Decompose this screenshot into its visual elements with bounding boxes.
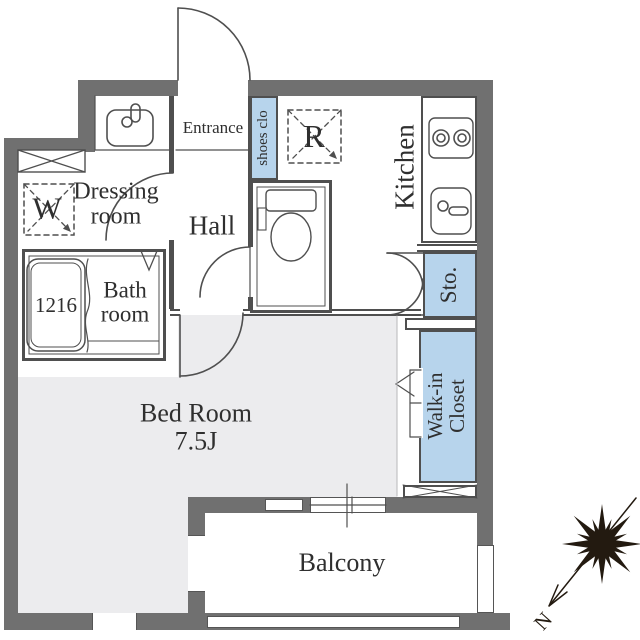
label-refrigerator: R: [303, 120, 324, 154]
label-entrance: Entrance: [183, 119, 243, 137]
kitchen-sink: [431, 188, 471, 234]
kitchen-faucet-handle: [449, 207, 468, 215]
compass-north-label: N: [529, 607, 557, 634]
toilet-bowl: [271, 213, 311, 261]
label-dressing-room: Dressing room: [46, 180, 186, 231]
kitchen-faucet: [438, 201, 448, 211]
label-shoes-closet: shoes clo: [256, 110, 272, 165]
label-hall: Hall: [189, 212, 236, 241]
stove-burner-left-outer: [433, 130, 449, 146]
label-walk-in-closet: Walk-in Closet: [424, 349, 469, 464]
label-storage: Sto.: [437, 267, 461, 303]
bedroom-door-arc: [180, 313, 243, 376]
label-bedroom-name: Bed Room: [140, 399, 252, 427]
toilet-door-arc: [200, 247, 250, 297]
label-kitchen: Kitchen: [391, 124, 420, 209]
stove-burner-right-outer: [454, 130, 470, 146]
storage-door-arc-bottom: [387, 279, 423, 315]
toilet-flush-panel: [258, 208, 266, 230]
label-bedroom: Bed Room 7.5J: [140, 399, 252, 454]
stove-burner-left-inner: [437, 134, 445, 142]
toilet-room-inner-line: [257, 187, 325, 306]
storage-door-arc-top: [387, 253, 423, 289]
stove-burner-right-inner: [458, 134, 466, 142]
entrance-door-arc: [178, 8, 250, 80]
toilet-tank: [266, 190, 316, 211]
label-bathroom: Bath room: [85, 279, 165, 328]
label-washer: W: [32, 193, 61, 226]
label-bedroom-size: 7.5J: [140, 427, 252, 455]
bath-door-mark: [141, 251, 157, 270]
label-balcony: Balcony: [299, 549, 386, 577]
label-bathtub-size: 1216: [35, 294, 77, 316]
washbasin: [107, 110, 153, 146]
floor-plan: N Entrance shoes clo R Kitchen Dressing …: [0, 0, 640, 640]
washbasin-tap-handle: [131, 104, 140, 122]
closet-door-chevron: [396, 372, 414, 396]
